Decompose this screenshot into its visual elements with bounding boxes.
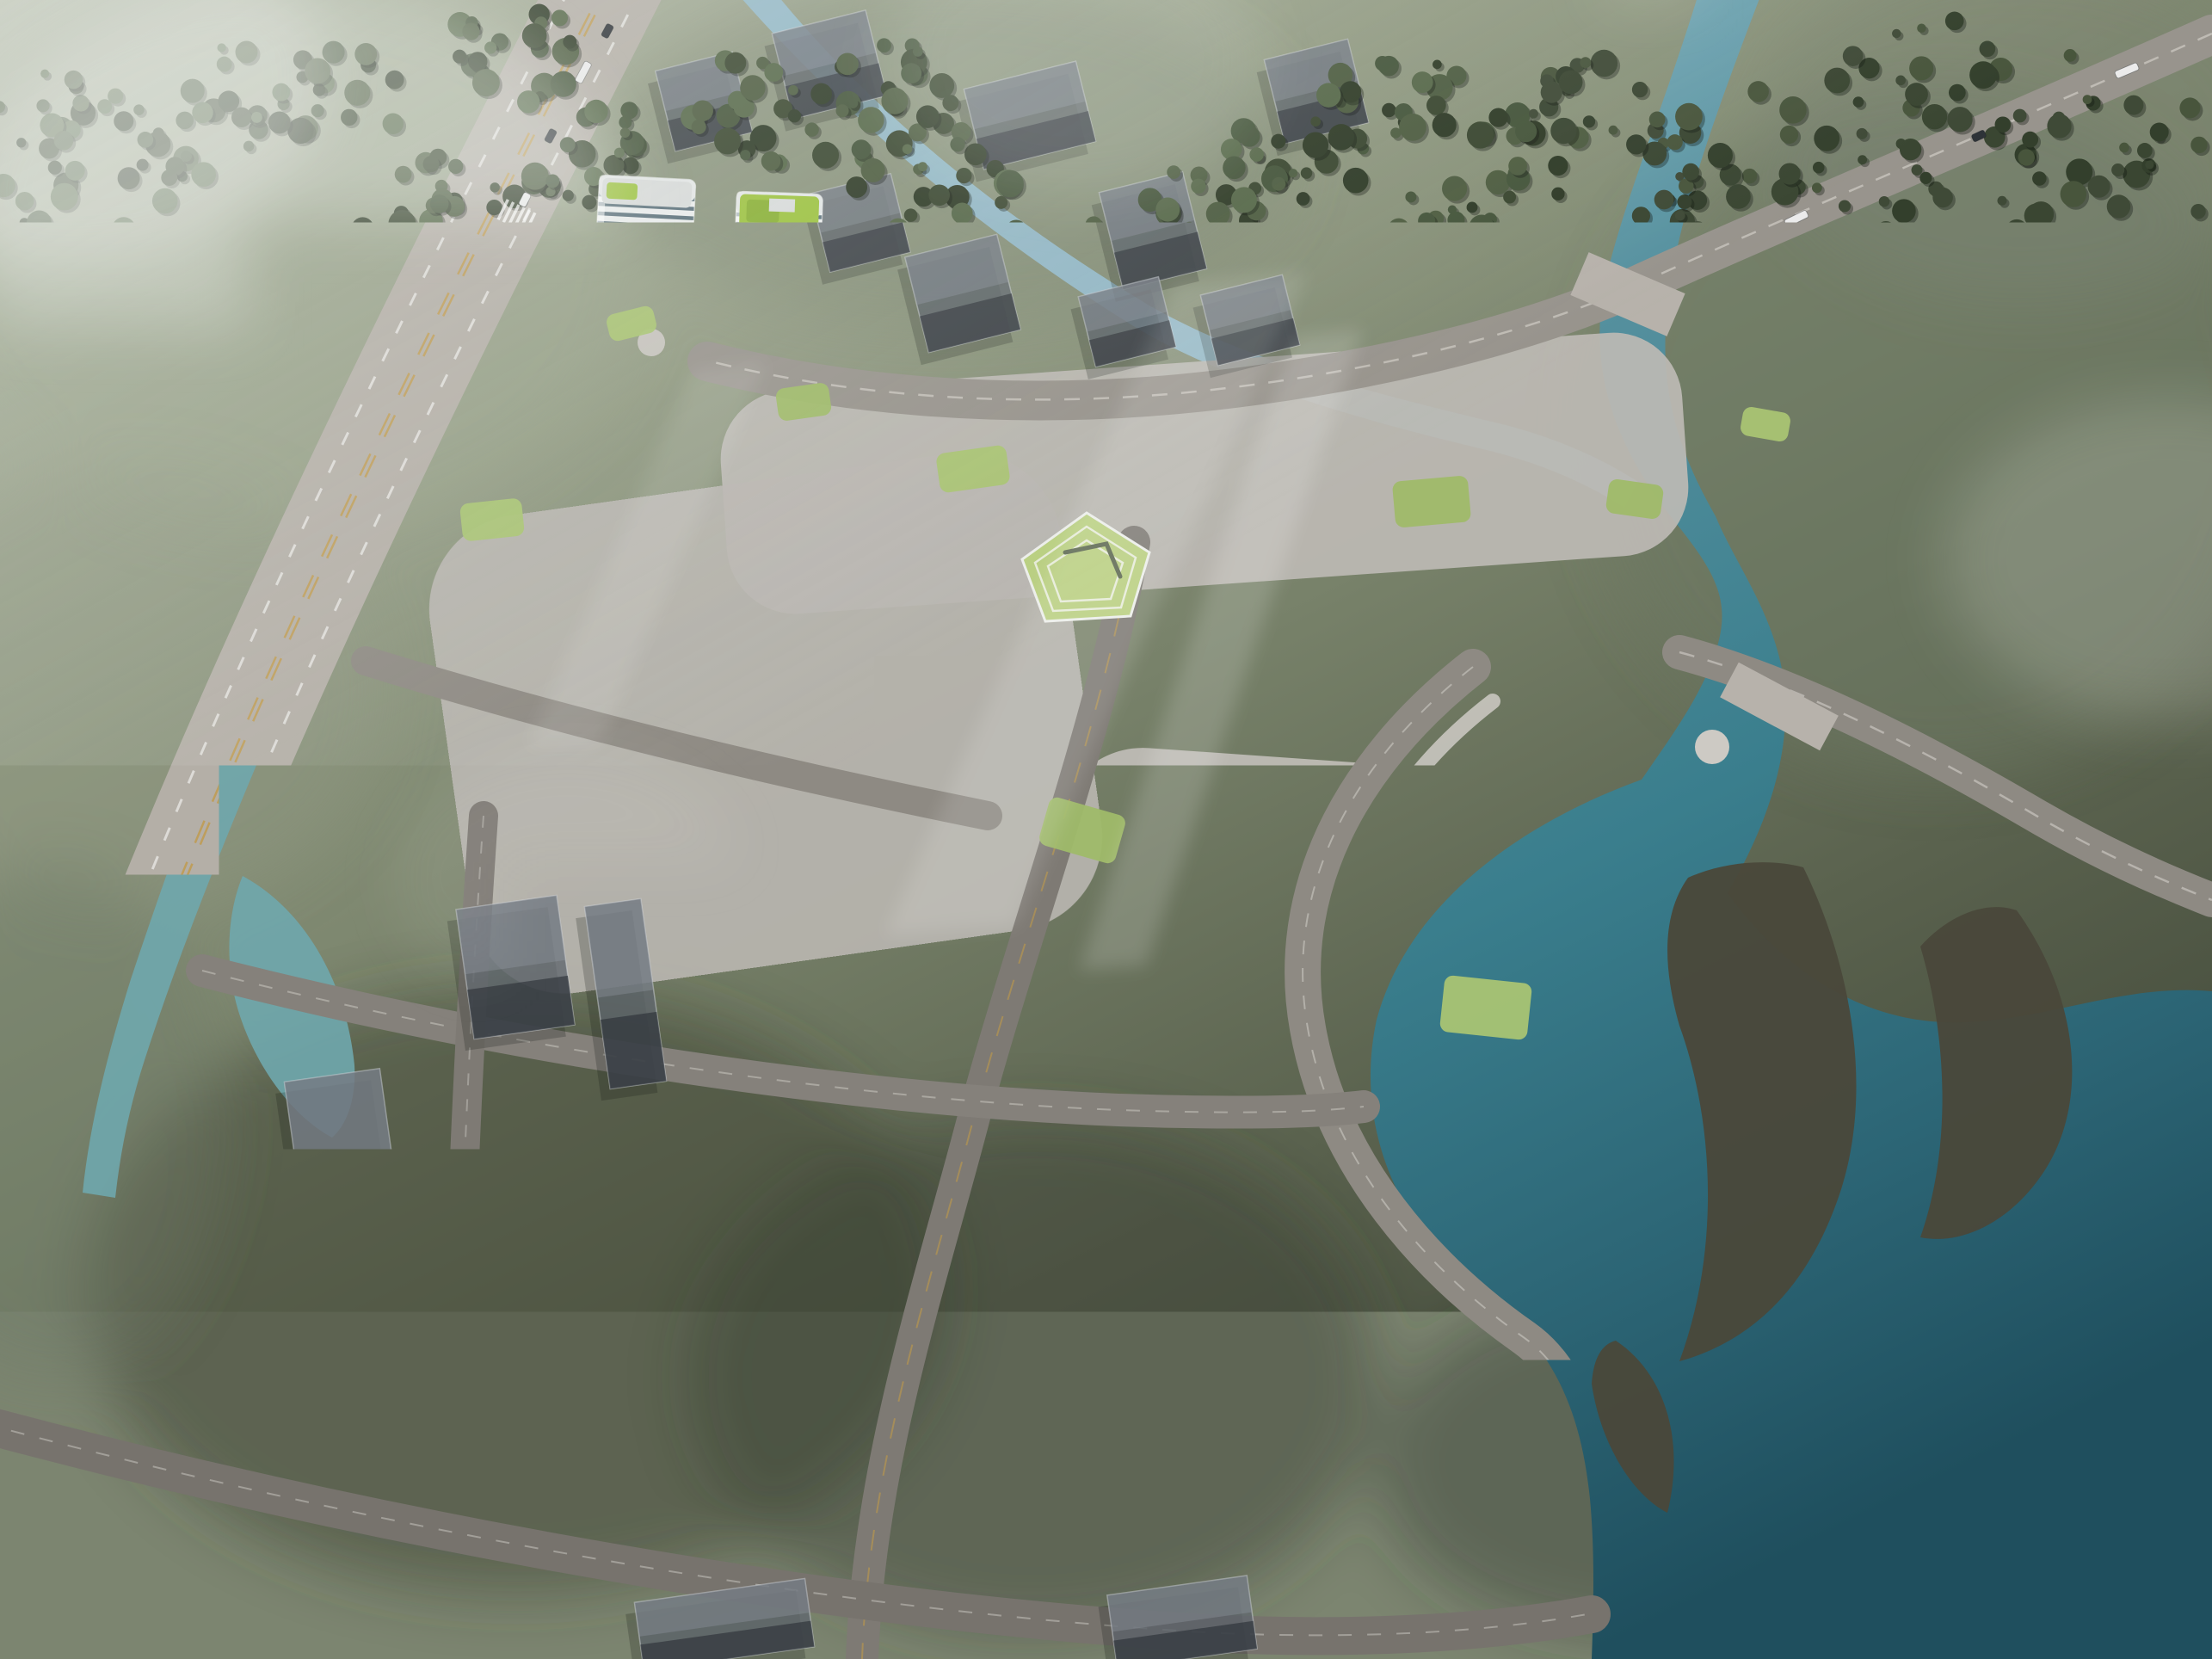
atmosphere-mist-layer (0, 0, 2212, 1659)
bottom-vignette (0, 1177, 2212, 1659)
rendering-canvas (0, 0, 2212, 1659)
masterplan-aerial-rendering (0, 0, 2212, 1659)
